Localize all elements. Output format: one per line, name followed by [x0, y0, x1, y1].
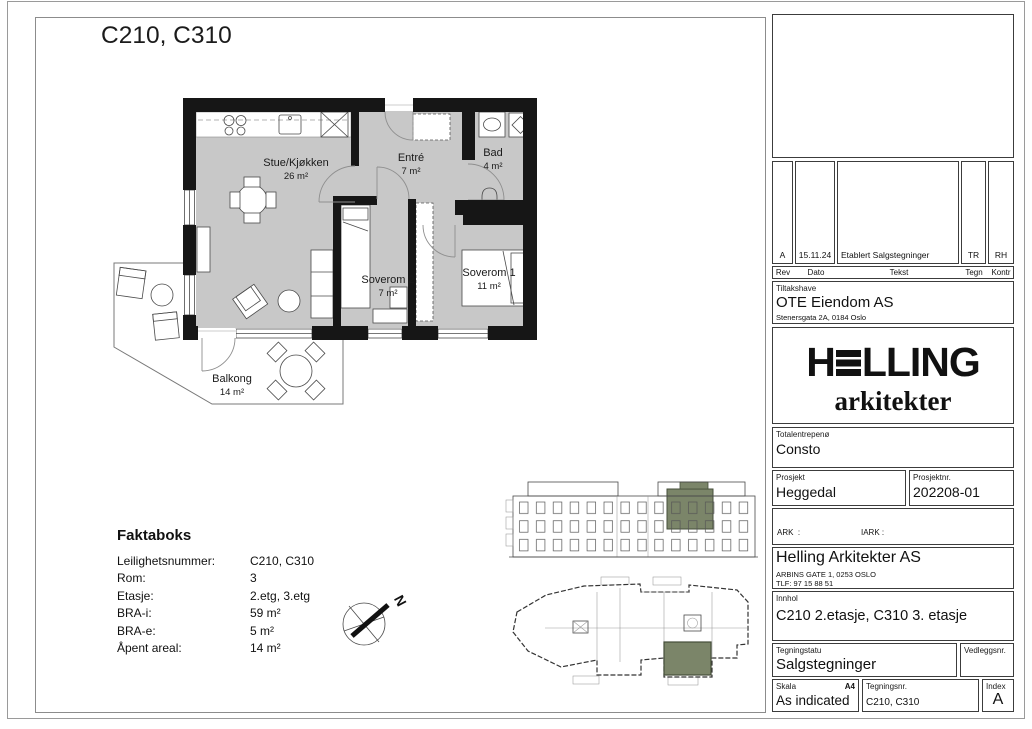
contractor-box: Totalentrepenø Consto: [772, 427, 1014, 468]
room-area-soverom2: 7 m²: [379, 288, 398, 299]
fakta-row: Leilighetsnummer:C210, C310: [117, 553, 397, 570]
room-label-stue: Stue/Kjøkken: [263, 157, 328, 169]
project-number-box: Prosjektnr. 202208-01: [909, 470, 1014, 506]
architect-name: Helling Arkitekter AS: [776, 549, 921, 567]
title-block: A 15.11.24 Etablert Salgstegninger TR RH…: [772, 14, 1014, 712]
rev-col-rev: A: [772, 161, 793, 264]
rev-col-tekst: Etablert Salgstegninger: [837, 161, 959, 264]
project-box: Prosjekt Heggedal: [772, 470, 906, 506]
key-plan-vignette: [513, 577, 748, 685]
paper-format: A4: [845, 682, 855, 691]
helling-logo: HLLING: [773, 340, 1013, 384]
revision-index: A: [983, 691, 1013, 709]
room-area-entre: 7 m²: [402, 166, 421, 177]
elevation-vignette: [506, 482, 758, 557]
room-label-balkong: Balkong: [212, 373, 252, 385]
room-area-soverom1: 11 m²: [477, 281, 501, 292]
scale-box: Skala A4 As indicated: [772, 679, 859, 712]
fakta-row: BRA-i:59 m²: [117, 605, 397, 622]
rev-col-tegn: TR: [961, 161, 986, 264]
architect-logo-box: HLLING arkitekter: [772, 327, 1014, 424]
client-name: OTE Eiendom AS: [776, 294, 894, 311]
project-name: Heggedal: [776, 484, 836, 500]
rev-col-kontr: RH: [988, 161, 1014, 264]
architect-address: ARBINS GATE 1, 0253 OSLO: [776, 570, 876, 579]
logo-e-bars-icon: [836, 350, 861, 376]
room-area-balkong: 14 m²: [220, 387, 244, 398]
drawing-number-box: Tegningsnr. C210, C310: [862, 679, 979, 712]
contractor-name: Consto: [776, 441, 820, 457]
drawing-content: C210 2.etasje, C310 3. etasje: [776, 608, 967, 624]
attachment-number-box: Vedleggsnr.: [960, 643, 1014, 677]
drawing-number: C210, C310: [866, 697, 919, 708]
consultants-box: ARK : RIB : RIE : RIV : IARK : RIBr : EL…: [772, 508, 1014, 545]
room-label-entre: Entré: [398, 152, 424, 164]
fakta-row: Etasje:2.etg, 3.etg: [117, 588, 397, 605]
index-box: Index A: [982, 679, 1014, 712]
revision-blank-box: [772, 14, 1014, 158]
faktaboks: Faktaboks Leilighetsnummer:C210, C310 Ro…: [117, 527, 397, 657]
rev-col-dato: 15.11.24: [795, 161, 835, 264]
entre-wardrobe: [413, 114, 450, 140]
content-box: Innhol C210 2.etasje, C310 3. etasje: [772, 591, 1014, 641]
faktaboks-title: Faktaboks: [117, 527, 397, 544]
revision-header-row: Rev Dato Tekst Tegn Kontr: [772, 266, 1014, 279]
drawing-status-box: Tegningstatu Salgstegninger: [772, 643, 957, 677]
room-area-bad: 4 m²: [484, 161, 503, 172]
fakta-row: BRA-e:5 m²: [117, 623, 397, 640]
room-area-stue: 26 m²: [284, 171, 308, 182]
drawing-sheet: C210, C310: [0, 0, 1032, 729]
room-label-soverom2: Soverom 2: [361, 274, 414, 286]
fakta-row: Rom:3: [117, 570, 397, 587]
architect-phone: TLF: 97 15 88 51: [776, 579, 833, 588]
kitchen-counter: [196, 112, 351, 137]
client-address: Stenersgata 2A, 0184 Oslo: [776, 313, 866, 322]
architect-info-box: Helling Arkitekter AS ARBINS GATE 1, 025…: [772, 547, 1014, 589]
client-box: Tiltakshave OTE Eiendom AS Stenersgata 2…: [772, 281, 1014, 324]
room-label-soverom1: Soverom 1: [462, 267, 515, 279]
project-number: 202208-01: [913, 484, 980, 500]
fakta-row: Åpent areal:14 m²: [117, 640, 397, 657]
drawing-status: Salgstegninger: [776, 656, 876, 673]
logo-subtitle: arkitekter: [773, 386, 1013, 417]
room-label-bad: Bad: [483, 147, 503, 159]
scale-value: As indicated: [776, 693, 850, 708]
